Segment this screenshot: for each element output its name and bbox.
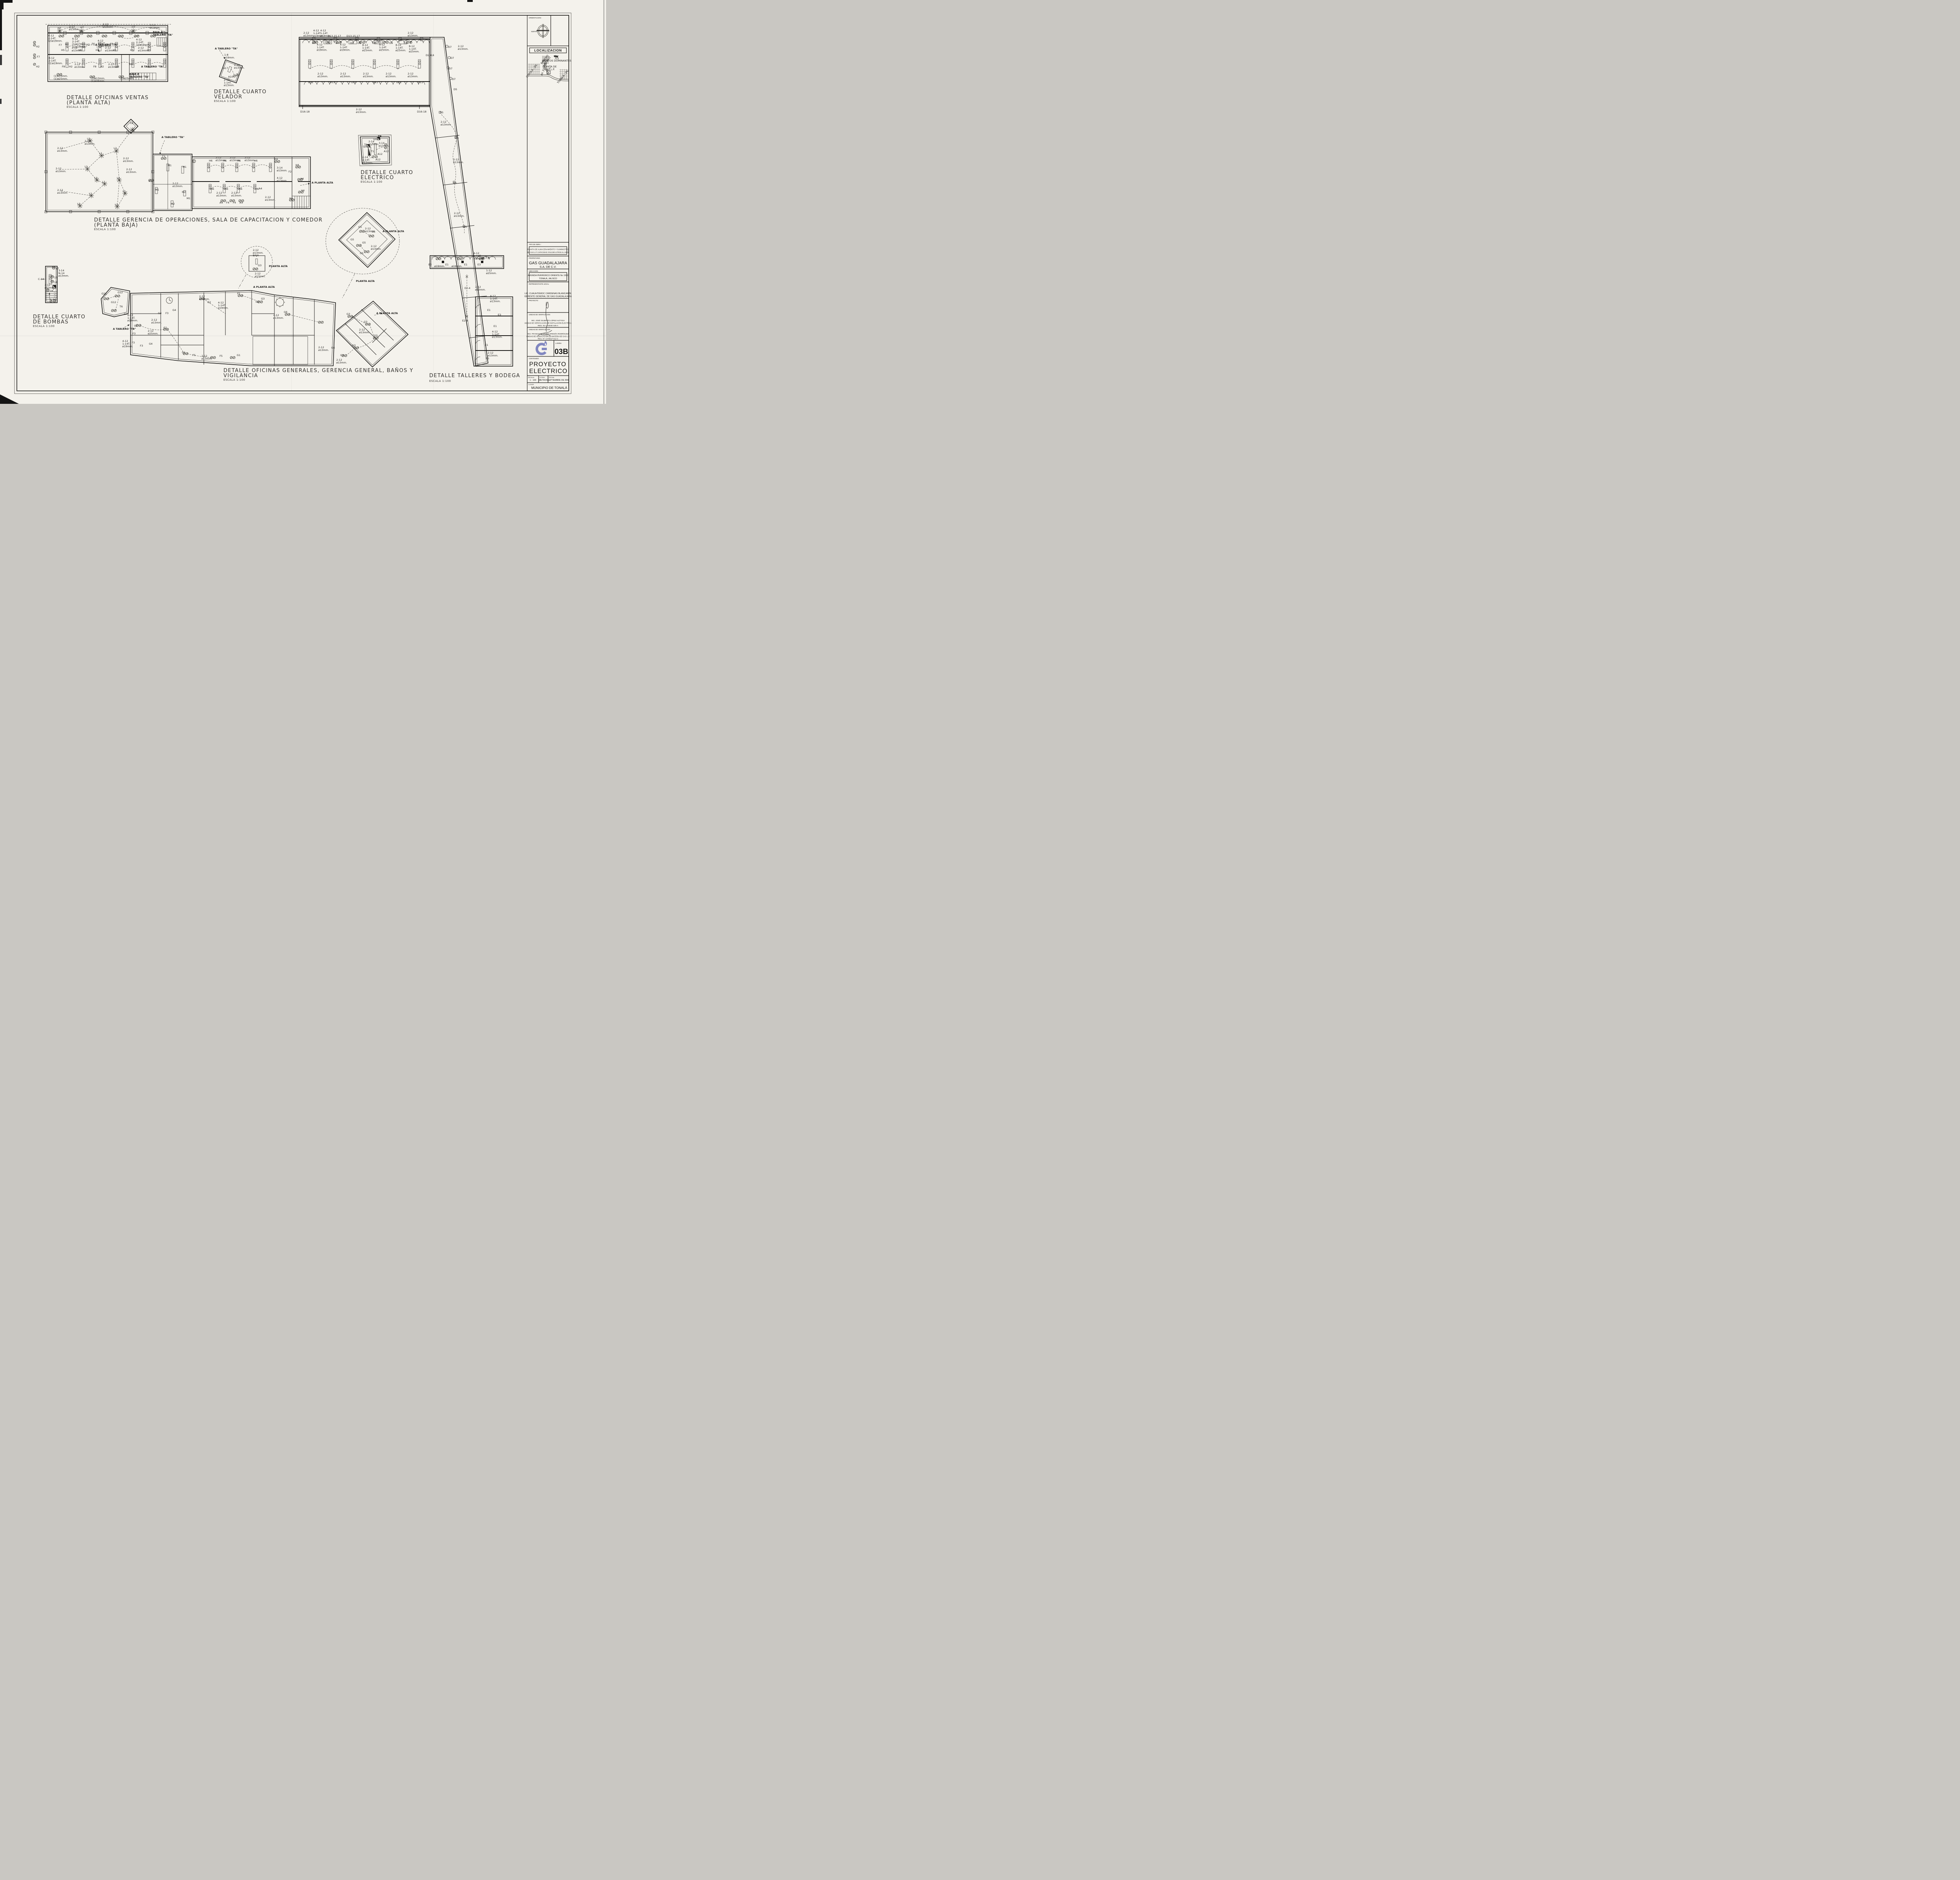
- cad-label: F4: [233, 201, 236, 204]
- north-label: NORTE: [531, 31, 537, 33]
- cad-label: 14: [54, 281, 57, 284]
- cad-label: 2-12ø13mm.: [340, 72, 351, 78]
- cad-label: A12: [384, 150, 389, 153]
- cad-label: M2: [182, 191, 186, 194]
- cad-label: 13: [54, 276, 57, 279]
- tipo-obra-line2: DE GAS L.P. CAPACIDAD 1'012,000 LITROS A…: [527, 251, 569, 253]
- cad-label: L1: [99, 152, 102, 155]
- cad-label: H2: [69, 65, 73, 68]
- cad-label: E1: [464, 263, 467, 266]
- cad-label: G3: [340, 354, 344, 357]
- cad-label: D5: [455, 136, 459, 140]
- cad-label: 2-12ø13mm.: [265, 196, 276, 202]
- uv2-line3: REG. N°: UVSELP 012-C: [538, 338, 559, 340]
- cad-label: 2-12ø13mm.: [172, 182, 183, 188]
- cad-label: 2-12ø13mm.: [488, 351, 498, 357]
- cad-label: 2-12ø13mm.: [454, 212, 465, 218]
- detail-cuarto-bombas-drawing: M17M13M14M183-14N-14ø13mm.C-142-12ø13mm.…: [33, 266, 85, 328]
- fecha-value: SEPTIEMBRE DE 2006: [548, 379, 569, 381]
- cad-label: A PLANTA ALTA: [383, 230, 404, 233]
- cad-label: PLANTA ALTA: [356, 280, 375, 283]
- cad-label: ø19mm.: [434, 265, 445, 268]
- cad-label: F8: [93, 65, 96, 68]
- cad-label: A12: [376, 158, 381, 161]
- cad-label: F5: [220, 354, 223, 358]
- cad-label: D9: [389, 42, 393, 45]
- cad-label: 8-122-14T.(1)ø19mm.: [49, 56, 63, 65]
- cad-label: H6: [255, 187, 259, 191]
- representante-line1: LIC. CUAUHTÉMOC CÁRDENAS BLANCARTE: [524, 292, 572, 295]
- tipo-obra-line1: PLANTA DE ALMACENAMIENTO Y SUMINISTRO: [527, 249, 569, 251]
- cad-label: C-14: [50, 298, 56, 301]
- detail-talleres-bodega-drawing: 2-12ø13mm.4-121-14T.ø19mm.4-121-14T.ø19m…: [299, 29, 520, 383]
- cad-label: 2-12ø25mm.: [148, 329, 158, 335]
- blueprint-scan: H72-12ø13mm.H72-12ø13mm.H72-12ø13mm.8-12…: [0, 0, 606, 404]
- cad-label: PLANTA ALTA: [269, 265, 288, 268]
- cad-label: H5: [130, 49, 134, 52]
- location-map: RANCHOLA CRUZAV. JUAREZPLANTA DEGAS L.P.…: [525, 54, 571, 85]
- gas-guadalajara-logo-icon: [535, 341, 548, 356]
- cad-label: D5: [440, 111, 443, 114]
- detail-cuarto-velador-drawing: A TABLERO "TA"1-8ø19mm.A172-12ø13mm.A102…: [214, 47, 267, 103]
- cad-label: D7: [449, 67, 452, 70]
- lamina-value: 03B: [555, 348, 568, 356]
- cad-label: M: [51, 280, 53, 283]
- cad-label: E2-4: [465, 287, 470, 290]
- cad-label: F1: [149, 180, 152, 183]
- cad-label: G1: [182, 351, 185, 354]
- cad-label: G1: [237, 354, 240, 357]
- cad-label: 2-12ø13mm.: [408, 72, 418, 78]
- detail-title-2: (PLANTA ALTA): [67, 100, 111, 106]
- cad-label: E3: [428, 263, 432, 266]
- cad-label: E3: [477, 263, 481, 266]
- unidad-verificacion-1-box: UNIDAD DE VERIFICACION: ING. JOSÉ GILBER…: [524, 312, 572, 327]
- cad-label: A PLANTA ALTA: [376, 312, 398, 315]
- cad-label: 2-12ø13mm.: [303, 31, 314, 37]
- representante-label: REPRESENTANTE LEGAL:: [529, 283, 549, 285]
- cad-label: H5: [129, 63, 133, 66]
- cad-label: D11: [330, 81, 335, 84]
- ubicacion-box: UBICACION: AVENIDA PERIFÉRICO ORIENTE No…: [527, 269, 569, 282]
- cad-label: 18: [50, 289, 53, 292]
- uv2-line2: UNIDAD DE VERIFICACIÓN EN MATERIA DE GAS…: [526, 336, 570, 338]
- cad-label: H2: [100, 65, 104, 68]
- cad-label: L1: [85, 165, 88, 168]
- cad-label: D11: [396, 81, 401, 84]
- cad-label: 2-12ø13mm.: [234, 64, 245, 69]
- cad-label: 2-12ø13mm.: [57, 189, 68, 194]
- cad-label: T6: [119, 305, 123, 308]
- cad-label: E3: [498, 313, 501, 316]
- cad-label: E1: [445, 263, 448, 266]
- cad-label: 4-121-14T.ø13mm.: [490, 294, 501, 303]
- lamina-label: LAMINA: [555, 342, 562, 344]
- uv1-label: UNIDAD DE VERIFICACION:: [529, 314, 550, 316]
- cad-label: 2-12ø13mm.: [408, 31, 418, 37]
- contenido-box: CONTENIDO: PROYECTO ELECTRICO: [527, 356, 569, 376]
- cad-label: H6: [211, 187, 214, 191]
- cotas-label: COTAS:: [539, 376, 545, 378]
- cotas-value: METROS: [539, 379, 548, 381]
- detail-title-2: (PLANTA BAJA): [94, 222, 138, 228]
- cad-label: H5: [61, 49, 65, 52]
- escala-label: ESCALA:: [528, 376, 534, 378]
- cad-label: 8-121-14T.ø25mm.: [362, 44, 373, 52]
- cad-label: D7: [450, 56, 454, 60]
- cad-label: T1: [370, 150, 374, 153]
- cad-label: 4-121-14T.ø19mm.: [317, 43, 327, 52]
- tipo-obra-label: TIPO DE OBRA :: [529, 243, 541, 245]
- cad-label: A PLANTA ALTA: [253, 285, 275, 289]
- fecha-label: FECHA:: [549, 376, 554, 378]
- ubicacion-line2: TONALÁ, JALISCO: [539, 277, 557, 280]
- cad-label: 2-12ø13mm.: [105, 46, 116, 52]
- lugar-box: LUGAR: MUNICIPIO DE TONALÁ: [527, 383, 569, 391]
- proyecto-label: PROYECTO:: [529, 300, 539, 302]
- cad-label: PLANTA DEGAS L.P.: [543, 65, 557, 71]
- cad-label: M1: [168, 164, 172, 167]
- cad-label: L1: [89, 192, 92, 195]
- escala-cotas-fecha-row: ESCALA: 1 : 100 COTAS: METROS FECHA: SEP…: [527, 376, 569, 383]
- cad-label: H4: [289, 197, 293, 200]
- cad-label: A PLANTA ALTA: [312, 181, 333, 184]
- escala-value: 1 : 100: [530, 379, 536, 381]
- cad-label: 2-12ø13mm.: [85, 140, 95, 145]
- cad-label: D9: [327, 42, 330, 45]
- uv2-line1: ING. FRANCISCO JAVIER ORDUÑA RODRÍGUEZ: [528, 332, 569, 335]
- cad-label: BAJA ATABLERO "TA": [129, 73, 149, 78]
- cad-label: 2-12ø13mm.: [150, 24, 160, 29]
- orientation-label: ORIENTACION :: [529, 17, 542, 19]
- cad-label: H4: [301, 189, 305, 192]
- cad-label: F2: [289, 170, 292, 173]
- cad-label: G12: [111, 301, 116, 304]
- lugar-label: LUGAR:: [528, 383, 534, 385]
- cad-label: F7: [37, 55, 40, 58]
- cad-label: G7: [124, 312, 127, 316]
- detail-cuarto-electrico-drawing: TBQOD22-14ø13mm.TAQOD23-14ø13mm.T1A12A12…: [358, 135, 413, 183]
- cad-label: G3: [261, 297, 265, 300]
- cad-label: 2-12ø13mm.: [231, 191, 242, 197]
- cad-label: 1-12ø25mm.: [486, 269, 497, 275]
- cad-label: QOD2: [363, 145, 370, 148]
- cad-label: M: [51, 275, 53, 278]
- cad-label: C-14: [38, 278, 44, 281]
- compass-icon: [536, 24, 550, 38]
- cad-label: H5: [96, 49, 99, 52]
- uv1-line2: UNIDAD DE VERIFICACIÓN DE INSTALACIÓN EL…: [524, 322, 572, 324]
- cad-label: 2-12ø13mm.: [356, 108, 367, 114]
- cad-label: G3: [258, 264, 261, 267]
- cad-label: 3-14ø13mm.: [277, 166, 287, 172]
- cad-label: D13,15,17: [347, 35, 360, 38]
- propietario-label: PROPIETARIO:: [529, 257, 540, 259]
- cad-label: 4-121-14T.ø13mm.: [492, 330, 503, 339]
- cad-label: 8-121-14T.ø25mm.: [396, 44, 406, 52]
- cad-label: M1: [183, 165, 187, 169]
- ubicacion-line1: AVENIDA PERIFÉRICO ORIENTE No 1500: [528, 274, 568, 277]
- cad-label: L1: [102, 180, 105, 183]
- cad-label: 2-12ø13mm.: [371, 245, 381, 251]
- cad-label: F3: [132, 341, 135, 344]
- contenido-label: CONTENIDO:: [529, 358, 539, 360]
- cad-label: A TABLERO "TA": [215, 47, 238, 50]
- cad-label: 1-8ø19mm.: [224, 53, 235, 59]
- detail-scale: ESCALA 1:100: [33, 325, 55, 328]
- cad-label: G12: [118, 291, 123, 294]
- cad-label: T: [193, 160, 195, 163]
- logo-lamina-row: LAMINA 03B: [527, 340, 569, 356]
- cad-label: G3: [347, 312, 350, 316]
- cad-label: E1: [485, 343, 488, 347]
- cad-label: L2: [77, 202, 80, 205]
- cad-label: 2-12ø13mm.: [103, 23, 113, 29]
- cad-label: H2: [36, 65, 40, 68]
- cad-label: G3: [352, 344, 356, 347]
- scan-artifacts: [0, 0, 606, 404]
- localizacion-box: LOCALIZACION RANCHOLA CRUZAV. JUAREZPLAN…: [525, 46, 571, 242]
- cad-label: G6: [284, 311, 287, 314]
- cad-label: 2-12ø13mm.: [441, 120, 451, 126]
- cad-label: VIENTOS DOMINANTES: [542, 59, 572, 62]
- propietario-suffix: S.A. DE C.V.: [540, 265, 557, 269]
- cad-label: H4: [274, 158, 278, 161]
- cad-label: L2: [117, 176, 120, 180]
- cad-label: G2: [256, 300, 259, 303]
- orientation-box: ORIENTACION : NORTE: [527, 15, 569, 46]
- cad-label: 2-12ø13mm.: [318, 346, 329, 352]
- cad-label: 2-12ø13mm.: [123, 157, 134, 163]
- cad-label: H7: [80, 26, 84, 29]
- cad-label: G5: [362, 241, 366, 244]
- cad-label: F4: [226, 201, 229, 204]
- lugar-value: MUNICIPIO DE TONALÁ: [531, 386, 567, 390]
- cad-label: G3: [364, 320, 367, 323]
- cad-label: 6-121-14T.ø19mm.: [127, 314, 138, 322]
- cad-label: F3: [165, 312, 169, 315]
- cad-label: D16-18: [417, 110, 426, 113]
- cad-label: D11: [418, 81, 423, 84]
- cad-label: 2-12ø13mm.: [458, 45, 468, 51]
- cad-label: G1: [163, 326, 167, 329]
- contenido-line1: PROYECTO: [529, 361, 566, 368]
- cad-label: D1: [358, 42, 361, 45]
- cad-label: 2-12ø13mm.: [74, 63, 85, 69]
- cad-label: F1: [162, 154, 165, 158]
- cad-label: A17: [223, 67, 228, 70]
- cad-label: A TABLERO "TB": [113, 327, 136, 331]
- cad-label: 2-12ø13mm.: [255, 272, 265, 278]
- cad-label: M: [53, 266, 55, 269]
- cad-label: 2-12ø13mm.: [318, 72, 328, 78]
- cad-label: H4: [296, 163, 299, 167]
- cad-label: H6: [225, 187, 228, 191]
- representante-line2: GERENTE GENERAL DE GAS GUADALAJARA: [524, 296, 572, 298]
- cad-label: L2: [130, 122, 133, 125]
- cad-label: 3-14N-14ø13mm.: [58, 269, 69, 278]
- cad-label: 2-12ø13mm.: [138, 46, 149, 52]
- cad-label: QOD2: [373, 138, 381, 141]
- cad-label: A TABLERO "TA": [141, 65, 164, 68]
- cad-label: H7: [58, 27, 61, 30]
- cad-label: D1: [404, 42, 407, 45]
- cad-label: 4-12ø13mm.: [277, 176, 287, 182]
- cad-label: 2-12ø13mm.: [151, 318, 162, 324]
- cad-label: 4-12ø13mm.: [273, 314, 284, 320]
- uv1-line3: REG. No UVSEIE 026-A: [538, 325, 559, 327]
- cad-label: (1)ø13mm.(1)ø25mm.: [91, 77, 105, 83]
- cad-label: 8-121-14T.ø25mm.: [379, 43, 390, 52]
- cad-label: F7: [59, 44, 62, 47]
- cad-label: 2-141-14T.ø13mm.: [362, 156, 373, 164]
- cad-label: E5,7,9: [481, 256, 490, 260]
- cad-label: F6: [92, 42, 95, 45]
- localizacion-title: LOCALIZACION: [534, 49, 562, 53]
- cad-label: F3: [140, 344, 143, 347]
- propietario-box: PROPIETARIO: GAS GUADALAJARA S.A. DE C.V…: [527, 256, 569, 269]
- cad-label: 2-12ø13mm.: [56, 167, 66, 173]
- cad-label: G4: [149, 342, 152, 345]
- cad-label: L2: [115, 203, 118, 206]
- detail-oficinas-ventas-drawing: H72-12ø13mm.H72-12ø13mm.H72-12ø13mm.8-12…: [33, 23, 173, 109]
- detail-scale: ESCALA 1:100: [223, 378, 245, 381]
- cad-label: F3: [132, 332, 136, 335]
- title-block: ORIENTACION : NORTE LOCALIZACION: [524, 15, 572, 391]
- cad-label: A TABLERO "TA": [162, 136, 184, 139]
- plant-site-marker: [547, 71, 550, 74]
- cad-label: 2-12ø13mm.: [359, 328, 370, 334]
- cad-label: 2-12ø13mm.: [126, 168, 137, 174]
- cad-label: 2-12ø13mm.: [363, 72, 374, 78]
- detail-scale: ESCALA 1:100: [429, 380, 451, 383]
- cad-label: A4: [259, 187, 262, 190]
- cad-label: E2-4: [462, 319, 468, 322]
- cad-label: M1: [155, 188, 159, 191]
- cad-label: G1: [134, 324, 138, 327]
- cad-label: ø19mm.: [452, 265, 462, 268]
- cad-label: L2: [114, 147, 117, 150]
- detail-scale: ESCALA 1:100: [67, 105, 89, 109]
- cad-label: 2-12ø13mm.: [475, 285, 486, 291]
- cad-label: D7: [452, 78, 456, 81]
- cad-label: 8-122-14T.(2)ø19mm.: [48, 34, 62, 43]
- cad-label: M1: [187, 197, 191, 200]
- cad-label: D11: [351, 81, 356, 84]
- cad-label: 2-12ø13mm.: [201, 354, 212, 360]
- detail-title-2: ELECTRICO: [361, 175, 394, 181]
- cad-label: D5: [453, 182, 457, 185]
- ubicacion-label: UBICACION:: [529, 270, 538, 272]
- cad-label: A10: [228, 75, 233, 78]
- detail-scale: ESCALA 1:100: [361, 180, 383, 183]
- cad-label: 4-121-14T.ø19mm.: [218, 301, 229, 310]
- cad-label: G21: [102, 292, 107, 295]
- detail-title-2: VELADOR: [214, 94, 243, 100]
- detail-scale: ESCALA 1:100: [94, 228, 116, 231]
- cad-label: G5: [372, 230, 375, 233]
- cad-label: F5: [237, 292, 240, 295]
- cad-label: 2-12ø13mm.: [453, 158, 464, 164]
- detail-scale: ESCALA 1:100: [214, 100, 236, 103]
- drawing-sheet: H72-12ø13mm.H72-12ø13mm.H72-12ø13mm.8-12…: [0, 0, 606, 404]
- cad-label: L2: [94, 176, 98, 180]
- cad-label: D5: [463, 225, 467, 229]
- cad-label: D1: [312, 42, 316, 45]
- cad-label: D11: [308, 81, 313, 84]
- stairs-icon: [295, 196, 307, 209]
- cad-label: E1: [487, 309, 490, 312]
- cad-label: 2-12ø13mm.: [336, 358, 347, 364]
- cad-label: D9: [350, 42, 354, 45]
- detail-title-2: DE BOMBAS: [33, 319, 69, 325]
- representante-box: REPRESENTANTE LEGAL: LIC. CUAUHTÉMOC CÁR…: [524, 282, 572, 298]
- cad-label: G2: [207, 301, 211, 304]
- cad-label: H7: [132, 25, 135, 29]
- cad-label: 2-12ø13mm.: [69, 25, 80, 31]
- cad-label: 2-12ø13mm.: [199, 295, 210, 301]
- cad-label: G5: [350, 238, 354, 241]
- cad-label: D5: [454, 88, 457, 91]
- cad-label: F8: [62, 65, 65, 68]
- detail-title-2: VIGILANCIA: [223, 373, 258, 379]
- cad-label: G5: [360, 252, 363, 255]
- cad-label: G4: [158, 312, 162, 315]
- cad-label: M2: [171, 202, 175, 205]
- cad-label: G5: [358, 225, 362, 229]
- cad-label: D7: [448, 45, 452, 49]
- cad-label: H6: [239, 187, 242, 191]
- cad-label: G4: [172, 309, 176, 312]
- unidad-verificacion-2-box: UNIDAD DE VERIFICACION: ING. FRANCISCO J…: [526, 327, 570, 340]
- cad-label: D16-18: [300, 110, 310, 113]
- cad-label: TC: [52, 286, 56, 289]
- cad-label: 2-12ø13mm.: [386, 72, 396, 78]
- uv2-label: UNIDAD DE VERIFICACION:: [529, 329, 550, 331]
- cad-label: TONALÁ , JAL.: [556, 68, 570, 85]
- cad-label: 4-121-14T.ø19mm.: [340, 43, 350, 52]
- detail-oficinas-generales-drawing: G21G12G12T6G76-121-14T.ø19mm.A TABLERO "…: [101, 208, 414, 381]
- cad-label: E1: [486, 357, 489, 360]
- cad-label: 4-121-14T.ø19mm.: [122, 340, 133, 348]
- cad-label: A12: [377, 153, 383, 156]
- uv1-line1: ING. JOSÉ GILBERTO LÓPEZ HUTTICH: [532, 319, 565, 322]
- cad-label: A TABLERO "TA": [95, 43, 118, 46]
- cad-label: D11: [373, 81, 378, 84]
- cad-label: H6: [209, 159, 212, 162]
- cad-label: G6: [331, 346, 335, 349]
- cad-label: E1: [494, 325, 497, 328]
- cad-label: G3: [374, 334, 377, 337]
- cad-label: A4: [240, 201, 243, 204]
- cad-label: F5: [192, 354, 196, 357]
- cad-label: 2-121-14T.ø13mm.: [224, 78, 234, 87]
- cad-label: D13,15,17: [328, 35, 341, 38]
- cad-label: D1: [336, 42, 339, 45]
- cad-label: D9: [372, 42, 376, 45]
- detail-title: DETALLE TALLERES Y BODEGA: [429, 373, 520, 379]
- detail-gerencia-operaciones-drawing: L2L2L2L1L1L2L2L1L1L2L2L12-12ø13mm.2-12ø1…: [45, 119, 333, 231]
- cad-label: H2: [65, 43, 69, 46]
- cad-label: H4: [300, 177, 304, 180]
- cad-label: (1)ø13mm.(1)ø25mm.: [54, 74, 68, 80]
- cad-label: 8-121-14T.ø25mm.: [409, 45, 419, 53]
- cad-label: L1: [123, 190, 126, 193]
- contenido-line2: ELECTRICO: [529, 368, 568, 375]
- cad-label: A4: [220, 201, 223, 204]
- tipo-obra-box: TIPO DE OBRA : PLANTA DE ALMACENAMIENTO …: [527, 242, 569, 256]
- cad-label: H2: [36, 45, 40, 48]
